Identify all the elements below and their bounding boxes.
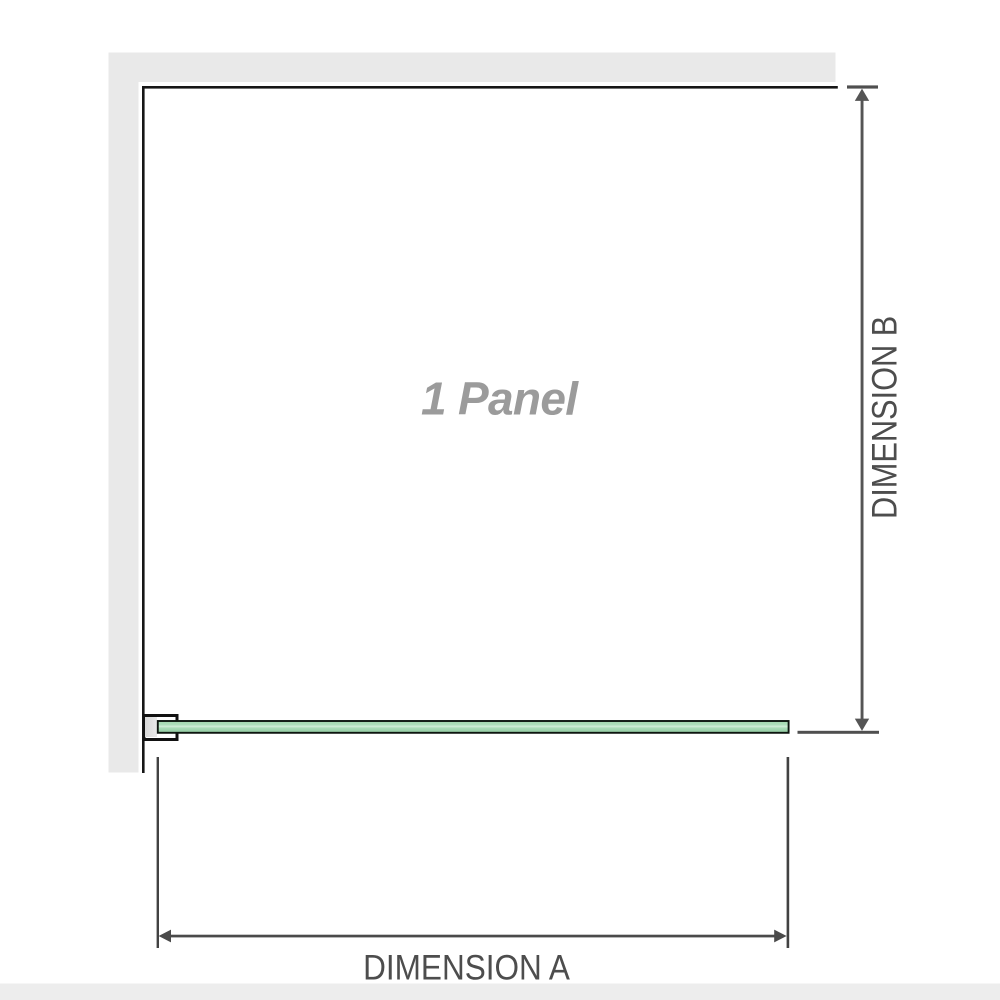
svg-text:1 Panel: 1 Panel bbox=[421, 373, 579, 425]
svg-text:DIMENSION B: DIMENSION B bbox=[865, 316, 905, 519]
svg-text:DIMENSION A: DIMENSION A bbox=[363, 949, 570, 988]
